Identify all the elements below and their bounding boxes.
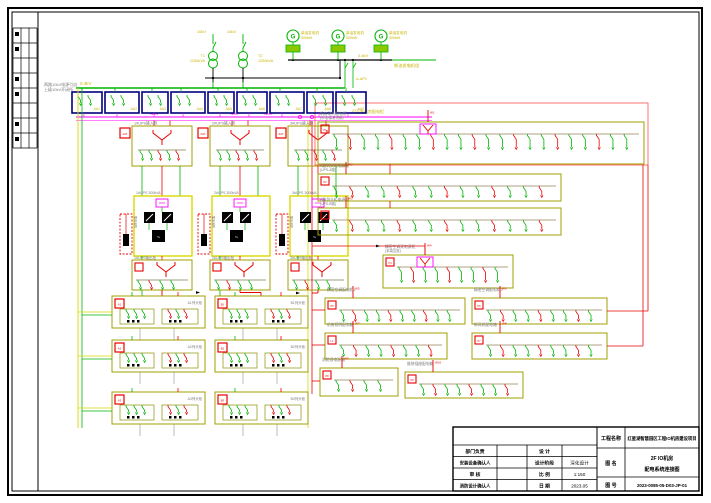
flow-arrow-icon xyxy=(296,292,300,295)
busbar-tap-icon xyxy=(132,416,135,419)
breaker-icon xyxy=(237,353,241,362)
breaker-icon xyxy=(471,267,475,282)
breaker-icon xyxy=(354,345,358,356)
busbar-tap-icon xyxy=(282,416,285,419)
breaker-icon xyxy=(352,95,356,105)
tb-date-value: 2023.05 xyxy=(571,484,588,489)
distribution-panel xyxy=(325,298,465,324)
breaker-icon xyxy=(551,310,555,321)
busbar-tap-icon xyxy=(272,320,275,323)
breaker-icon xyxy=(445,220,449,231)
breaker-icon xyxy=(138,280,142,289)
ups-label: 1#UPS 300kVA xyxy=(136,191,161,195)
panel-tag: P7 xyxy=(477,339,481,343)
breaker-icon xyxy=(149,280,153,289)
breaker-icon xyxy=(472,134,476,149)
breaker-icon xyxy=(365,310,369,321)
busbar-tap-icon xyxy=(235,364,238,367)
breaker-icon xyxy=(148,95,152,105)
breaker-icon xyxy=(224,95,228,105)
breaker-icon xyxy=(214,95,218,105)
busbar-tap-icon xyxy=(179,320,182,323)
feeder-code: W10 xyxy=(435,361,442,365)
breaker-icon xyxy=(149,150,153,160)
panel-name: 维修插座配电箱 xyxy=(407,361,434,366)
breaker-icon xyxy=(177,95,181,105)
panel-tag: L1 xyxy=(331,339,334,343)
breaker-icon xyxy=(237,405,241,414)
breaker-icon xyxy=(126,353,130,362)
battery-label: 蓄电池柜 xyxy=(290,216,295,228)
magenta-feeder-bus xyxy=(76,115,432,120)
breaker-icon xyxy=(341,345,345,356)
breaker-icon xyxy=(296,150,300,160)
generator-glyph: G xyxy=(336,34,341,40)
breaker-icon xyxy=(245,405,249,414)
panel-tag: A3 xyxy=(118,399,122,403)
lv-bus-label: 0.4kV xyxy=(80,81,92,86)
panel-tag: B1 xyxy=(221,303,225,307)
breaker-icon xyxy=(249,280,253,289)
hv-label: 10kV xyxy=(197,29,206,34)
breaker-icon xyxy=(433,384,437,395)
breaker-icon xyxy=(376,310,380,321)
switchgear-label: AA7 xyxy=(296,107,303,111)
feeder-code: W8 xyxy=(502,322,507,326)
breaker-icon xyxy=(287,353,291,362)
tb-project-label: 工程名称 xyxy=(601,435,621,442)
tb-drawing-name: 2F IO机房 xyxy=(651,455,674,462)
breaker-icon xyxy=(142,309,146,318)
breaker-icon xyxy=(134,353,138,362)
breaker-icon xyxy=(469,384,473,395)
breaker-icon xyxy=(424,310,428,321)
flow-arrow-icon xyxy=(196,291,200,294)
panel-tag: P8 xyxy=(325,374,329,378)
breaker-icon xyxy=(323,95,327,105)
breaker-icon xyxy=(563,345,567,356)
panel-tag: 2AT xyxy=(201,132,206,136)
breaker-icon xyxy=(168,405,172,414)
breaker-icon xyxy=(381,186,385,197)
breaker-icon xyxy=(378,380,382,391)
breaker-icon xyxy=(588,345,592,356)
busbar-tap-icon xyxy=(179,364,182,367)
inner-frame xyxy=(12,12,699,491)
hv-source-note: 上级10kV开闭所 xyxy=(44,86,73,92)
breaker-icon xyxy=(227,280,231,289)
distribution-panel xyxy=(320,368,398,396)
breaker-icon xyxy=(488,345,492,356)
breaker-icon xyxy=(160,280,164,289)
drawing-sheet: 两路10kV电源引自 上级10kV开闭所 10kV T1 1250kVA 10k… xyxy=(0,0,711,503)
breaker-icon xyxy=(445,134,449,149)
tb-row-label: 安装设备确认人 xyxy=(460,460,491,467)
breaker-icon xyxy=(364,380,368,391)
breaker-icon xyxy=(350,220,354,231)
title-block: 部门负责 安装设备确认人 审 核 消防设计确认人 设 计 设计阶段 比 例 日 … xyxy=(453,427,699,491)
breaker-icon xyxy=(481,384,485,395)
breaker-icon xyxy=(445,186,449,197)
panel-tag: A1 xyxy=(118,303,122,307)
breaker-icon xyxy=(366,186,370,197)
tb-mid-label: 日 期 xyxy=(539,483,550,490)
breaker-icon xyxy=(245,150,249,160)
busbar-tap-icon xyxy=(137,364,140,367)
ups-output-label: 3#UPS输出柜 xyxy=(290,255,313,260)
breaker-icon xyxy=(379,345,383,356)
breaker-icon xyxy=(229,353,233,362)
breaker-icon xyxy=(429,345,433,356)
breaker-icon xyxy=(523,220,527,231)
busbar-tap-icon xyxy=(174,364,177,367)
switchgear-label: AA1 xyxy=(94,107,101,111)
busbar-tap-icon xyxy=(230,416,233,419)
breaker-icon xyxy=(563,310,567,321)
feeder-code: W9 xyxy=(344,357,349,361)
breaker-icon xyxy=(526,310,530,321)
breaker-icon xyxy=(279,309,283,318)
breaker-icon xyxy=(486,134,490,149)
breaker-icon xyxy=(514,134,518,149)
breaker-icon xyxy=(413,186,417,197)
breaker-icon xyxy=(501,310,505,321)
gen-bus-label: 0.4kV xyxy=(358,53,369,58)
distribution-panel xyxy=(318,174,561,201)
panel-tag: P1 xyxy=(323,128,327,132)
generator-note: 500kW xyxy=(301,36,313,40)
breaker-icon xyxy=(342,95,346,105)
breaker-icon xyxy=(505,384,509,395)
breaker-icon xyxy=(423,267,427,282)
breaker-icon xyxy=(276,95,280,105)
breaker-icon xyxy=(555,134,559,149)
breaker-icon xyxy=(353,310,357,321)
switchgear-label: AA3 xyxy=(160,107,167,111)
busbar-tap-icon xyxy=(127,320,130,323)
rack-name: A2列头柜 xyxy=(188,344,203,349)
breaker-icon xyxy=(142,405,146,414)
ups-glyph: ~ xyxy=(313,235,317,241)
breaker-icon xyxy=(218,150,222,160)
battery-label: 蓄电池柜 xyxy=(134,216,139,228)
busbar-tap-icon xyxy=(235,320,238,323)
breaker-icon xyxy=(597,134,601,149)
breaker-icon xyxy=(397,220,401,231)
breaker-icon xyxy=(366,345,370,356)
breaker-icon xyxy=(253,95,257,105)
gen-breaker-box xyxy=(331,45,345,52)
busbar-tap-icon xyxy=(127,364,130,367)
tb-stage-value: 深化设计 xyxy=(570,460,589,467)
breaker-icon xyxy=(271,309,275,318)
chain-title: 1#UPS输入柜 xyxy=(134,121,158,126)
breaker-icon xyxy=(583,134,587,149)
ups-output-label: 2#UPS输出柜 xyxy=(212,255,235,260)
breaker-icon xyxy=(184,309,188,318)
breaker-icon xyxy=(245,353,249,362)
breaker-icon xyxy=(569,134,573,149)
breaker-icon xyxy=(237,309,241,318)
breaker-icon xyxy=(457,384,461,395)
generator-note: 500kW xyxy=(389,36,401,40)
busbar-tap-icon xyxy=(132,320,135,323)
tb-drawing-name: 配电系统连接图 xyxy=(644,466,679,473)
busbar-tap-icon xyxy=(169,320,172,323)
generator-glyph: G xyxy=(291,34,296,40)
breaker-icon xyxy=(176,405,180,414)
breaker-icon xyxy=(391,345,395,356)
transformer-tag: T2 xyxy=(258,54,262,58)
generator-glyph: G xyxy=(379,34,384,40)
breaker-icon xyxy=(334,134,338,149)
breaker-icon xyxy=(134,309,138,318)
breaker-icon xyxy=(375,134,379,149)
panel-tag: P6 xyxy=(477,304,481,308)
breaker-icon xyxy=(576,345,580,356)
ups-input-panel xyxy=(210,126,270,166)
ups-glyph: ~ xyxy=(235,235,239,241)
breaker-icon xyxy=(447,267,451,282)
breaker-icon xyxy=(411,267,415,282)
ats-switch-icon xyxy=(157,262,175,277)
busbar-tap-icon xyxy=(277,416,280,419)
ats-switch-icon xyxy=(235,262,253,277)
feeder-code: W1 xyxy=(430,111,435,115)
breaker-icon xyxy=(229,405,233,414)
feeder-code: W3 xyxy=(348,197,353,201)
breaker-icon xyxy=(287,405,291,414)
busbar-tap-icon xyxy=(132,364,135,367)
busbar-tap-icon xyxy=(230,320,233,323)
battery-icon xyxy=(123,234,129,246)
rack-name: B3列头柜 xyxy=(291,396,306,401)
battery-icon xyxy=(201,234,207,246)
panel-tag: B3 xyxy=(221,399,225,403)
panel-name: 消防双电源箱 xyxy=(322,357,345,362)
panel-tag: 3AT xyxy=(279,132,284,136)
breaker-icon xyxy=(176,309,180,318)
breaker-icon xyxy=(539,220,543,231)
distribution-panel xyxy=(318,208,561,235)
ups-output-label: 1#UPS输出柜 xyxy=(134,255,157,260)
breaker-icon xyxy=(381,220,385,231)
transformer-branch-2: 10kV T2 1250kVA xyxy=(227,29,274,88)
panel-tag: 1AT xyxy=(123,132,128,136)
breaker-icon xyxy=(483,267,487,282)
breaker-icon xyxy=(294,280,298,289)
distribution-panel xyxy=(472,298,607,324)
schematic-layer: G柴油发电机500kWG柴油发电机500kWG柴油发电机500kWAA1AA2A… xyxy=(72,30,648,436)
ats-switch-icon xyxy=(420,258,430,267)
switchgear-label: AA8 xyxy=(325,107,332,111)
revision-marks xyxy=(15,32,19,141)
panel-subname: (市电/柴发切换) xyxy=(320,115,344,120)
panel-tag: P5 xyxy=(330,304,334,308)
breaker-icon xyxy=(501,345,505,356)
busbar-tap-icon xyxy=(277,320,280,323)
feeder-code: W2 xyxy=(348,163,353,167)
breaker-icon xyxy=(492,186,496,197)
ups-glyph: ~ xyxy=(157,235,161,241)
gen-bus-name: 柴油发电机组 xyxy=(394,62,419,69)
busbar-tap-icon xyxy=(235,416,238,419)
chain-title: 2#UPS输入柜 xyxy=(212,121,236,126)
revision-strip xyxy=(13,28,37,148)
tb-mid-label: 比 例 xyxy=(539,471,550,478)
breaker-icon xyxy=(500,134,504,149)
ups-cabinet xyxy=(134,196,192,256)
tb-row-label: 消防设计确认人 xyxy=(460,483,491,490)
gen-breaker-box xyxy=(374,45,388,52)
breaker-icon xyxy=(229,309,233,318)
breaker-icon xyxy=(526,345,530,356)
ats-switch-icon xyxy=(313,262,331,277)
busbar-tap-icon xyxy=(230,364,233,367)
busbar-tap-icon xyxy=(174,320,177,323)
breaker-icon xyxy=(460,220,464,231)
ups-label: 2#UPS 300kVA xyxy=(214,191,239,195)
distribution-panel xyxy=(318,122,644,164)
generator-label: 柴油发电机 xyxy=(301,30,319,35)
breaker-icon xyxy=(121,95,125,105)
breaker-icon xyxy=(413,220,417,231)
breaker-icon xyxy=(429,220,433,231)
switchgear-label: AA4 xyxy=(197,107,204,111)
ups-label: 3#UPS 300kVA xyxy=(292,191,317,195)
transformer-tag: T1 xyxy=(201,54,205,58)
breaker-icon xyxy=(476,220,480,231)
busbar-tap-icon xyxy=(169,416,172,419)
breaker-icon xyxy=(279,353,283,362)
breaker-icon xyxy=(332,150,336,160)
breaker-icon xyxy=(403,134,407,149)
ats-switch-icon xyxy=(153,130,171,145)
gen-feeders xyxy=(344,59,356,88)
breaker-icon xyxy=(168,353,172,362)
breaker-icon xyxy=(271,353,275,362)
breaker-icon xyxy=(421,384,425,395)
breaker-icon xyxy=(279,405,283,414)
busbar-tap-icon xyxy=(282,320,285,323)
breaker-icon xyxy=(551,345,555,356)
panel-tag: P3 xyxy=(323,214,327,218)
panel-name: 机房照明配电箱 xyxy=(327,322,354,327)
breaker-icon xyxy=(158,95,162,105)
breaker-icon xyxy=(245,309,249,318)
ats-switch-icon xyxy=(231,130,249,145)
panel-tag: P4 xyxy=(388,261,392,265)
flow-arrow-icon xyxy=(376,245,380,248)
breaker-icon xyxy=(171,280,175,289)
busbar-tap-icon xyxy=(240,320,243,323)
panel-tag-box xyxy=(135,263,143,271)
breaker-icon xyxy=(539,186,543,197)
breaker-icon xyxy=(126,405,130,414)
breaker-icon xyxy=(167,150,171,160)
breaker-icon xyxy=(126,309,130,318)
busbar-tap-icon xyxy=(127,416,130,419)
feeder-code: W7 xyxy=(355,322,360,326)
breaker-icon xyxy=(541,134,545,149)
breaker-icon xyxy=(88,95,92,105)
breaker-icon xyxy=(187,95,191,105)
tb-scale-value: 1:150 xyxy=(574,472,586,477)
breaker-icon xyxy=(610,134,614,149)
breaker-icon xyxy=(227,150,231,160)
breaker-icon xyxy=(341,310,345,321)
panel-tag: A2 xyxy=(118,347,122,351)
rack-name: B1列头柜 xyxy=(291,300,306,305)
ats-switch-icon xyxy=(423,125,433,134)
rack-name: A1列头柜 xyxy=(188,300,203,305)
busbar-tap-icon xyxy=(277,364,280,367)
breaker-icon xyxy=(538,345,542,356)
panel-subname: (末端互投) xyxy=(385,248,401,253)
ups-input-panel xyxy=(132,126,192,166)
breaker-icon xyxy=(366,220,370,231)
breaker-icon xyxy=(243,95,247,105)
transformer-rating: 1250kVA xyxy=(258,59,274,63)
switchgear-label: AA2 xyxy=(131,107,138,111)
distribution-panel xyxy=(383,255,513,288)
tb-project-name: 红星湖智慧园区工程IO机房建设项目 xyxy=(628,435,697,442)
breaker-icon xyxy=(417,134,421,149)
breaker-icon xyxy=(142,353,146,362)
breaker-icon xyxy=(513,310,517,321)
chain-title: 3#UPS输入柜 xyxy=(290,121,314,126)
panel-name: 新风机配电箱 xyxy=(474,322,497,327)
generator-note: 500kW xyxy=(346,36,358,40)
busbar-tap-icon xyxy=(272,364,275,367)
breaker-icon xyxy=(334,220,338,231)
busbar-tap-icon xyxy=(137,416,140,419)
breaker-icon xyxy=(412,310,416,321)
busbar-tap-icon xyxy=(272,416,275,419)
breaker-icon xyxy=(271,405,275,414)
breaker-icon xyxy=(538,310,542,321)
panel-tag: P9 xyxy=(410,378,414,382)
breaker-icon xyxy=(316,280,320,289)
hv-label: 10kV xyxy=(227,29,236,34)
tb-row-label: 部门负责 xyxy=(465,448,484,455)
tb-number-value: 2023-0085-05-D03-JP-01 xyxy=(637,483,688,488)
breaker-icon xyxy=(445,384,449,395)
breaker-icon xyxy=(323,150,327,160)
switchgear-label: AA5 xyxy=(226,107,233,111)
gen-feeder-label: A-AP1 xyxy=(356,77,367,81)
battery-icon xyxy=(279,234,285,246)
breaker-icon xyxy=(184,405,188,414)
busbar-tap-icon xyxy=(179,416,182,419)
tb-drawing-label: 图 名 xyxy=(605,460,616,467)
busbar-tap-icon xyxy=(174,416,177,419)
breaker-icon xyxy=(400,310,404,321)
transformer-branch-1: 10kV T1 1250kVA xyxy=(190,29,218,88)
breaker-icon xyxy=(286,95,290,105)
breaker-icon xyxy=(495,267,499,282)
breaker-icon xyxy=(216,280,220,289)
panel-tag: P2 xyxy=(323,180,327,184)
breaker-icon xyxy=(176,353,180,362)
breaker-icon xyxy=(508,186,512,197)
busbar-tap-icon xyxy=(282,364,285,367)
breaker-icon xyxy=(134,405,138,414)
panel-name: 精密空调配电柜2 xyxy=(474,287,503,292)
tb-number-label: 图 号 xyxy=(605,482,616,489)
breaker-icon xyxy=(624,134,628,149)
battery-label: 蓄电池柜 xyxy=(212,216,217,228)
